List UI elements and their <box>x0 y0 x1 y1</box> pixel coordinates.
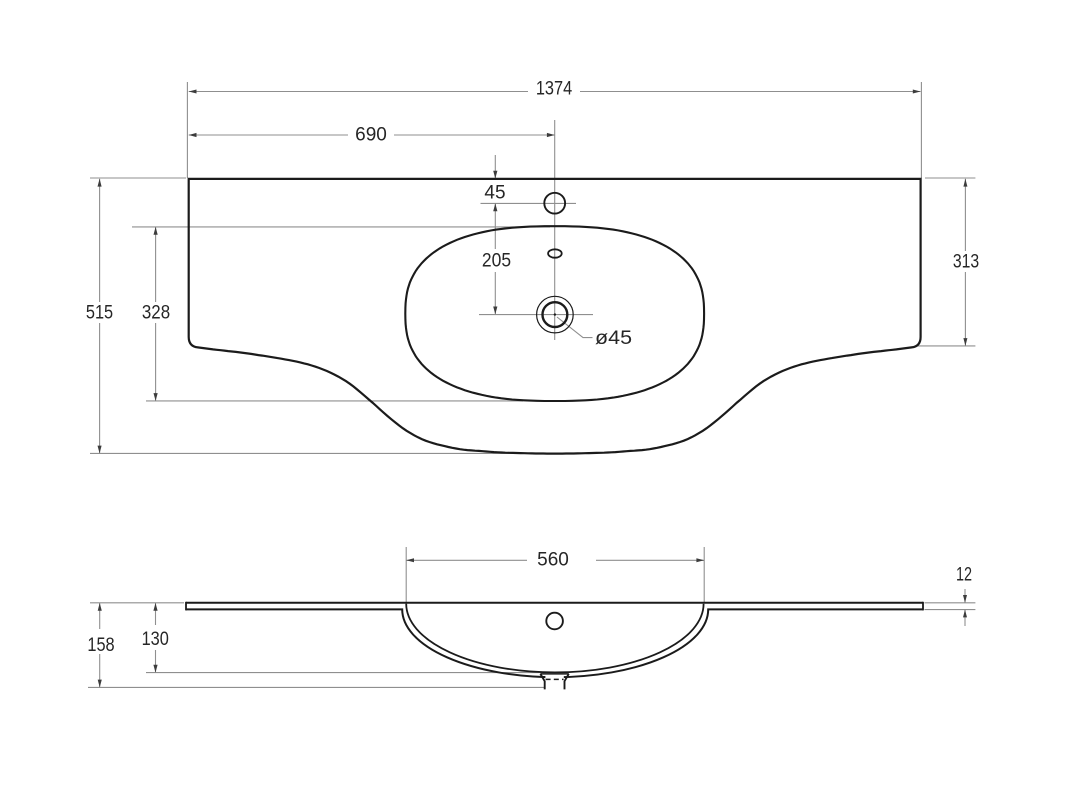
svg-text:313: 313 <box>953 250 979 272</box>
svg-text:12: 12 <box>956 564 972 585</box>
svg-text:515: 515 <box>86 301 113 322</box>
svg-text:328: 328 <box>142 302 170 323</box>
svg-text:205: 205 <box>482 249 511 271</box>
svg-text:130: 130 <box>142 628 169 649</box>
svg-text:690: 690 <box>355 125 387 146</box>
svg-text:ø45: ø45 <box>595 328 632 349</box>
svg-text:560: 560 <box>537 550 569 571</box>
svg-text:158: 158 <box>87 634 114 655</box>
svg-text:45: 45 <box>484 183 505 204</box>
svg-text:1374: 1374 <box>536 77 572 98</box>
